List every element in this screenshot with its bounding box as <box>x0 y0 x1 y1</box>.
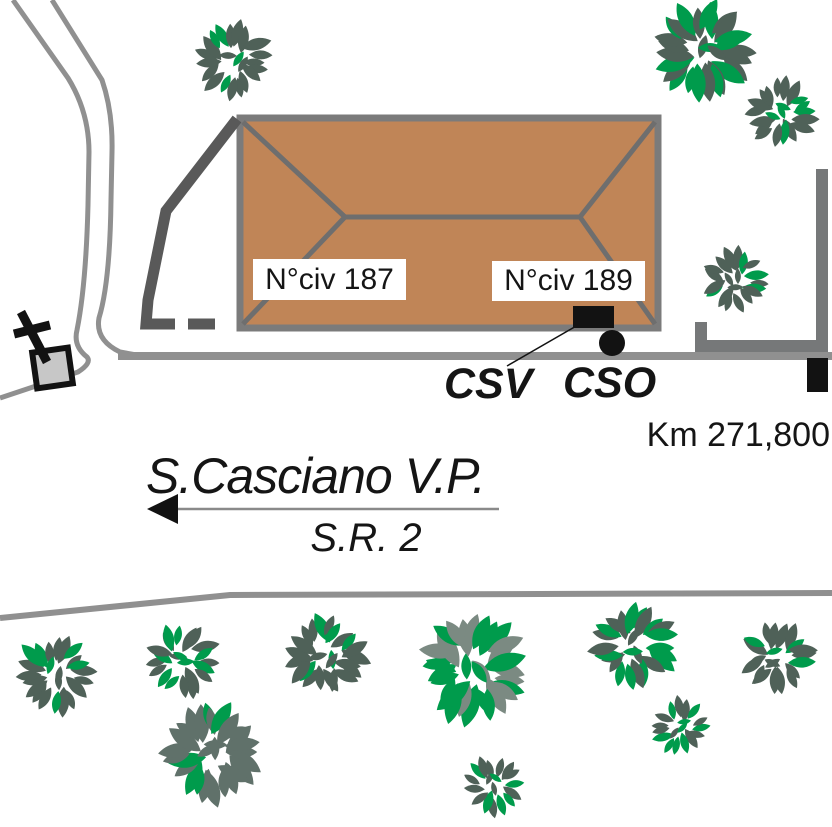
courtyard-wall-line <box>146 119 237 324</box>
road-name-label: S.R. 2 <box>298 518 434 558</box>
tree <box>651 694 711 755</box>
destination-label: S.Casciano V.P. <box>146 451 485 501</box>
csv-marker <box>573 306 614 328</box>
tree-leaf <box>464 784 485 793</box>
km-marker-label: Km 271,800 <box>600 418 830 452</box>
west-road-inner-edge <box>52 0 142 356</box>
site-map: N°civ 187 N°civ 189 CSV CSO Km 271,800 S… <box>0 0 832 827</box>
cross-horizontal-bar <box>14 325 50 334</box>
tree <box>743 75 819 148</box>
tree-leaf <box>461 653 472 679</box>
map-graphics <box>0 0 832 827</box>
tree-leaf <box>744 270 770 281</box>
tree <box>283 610 374 694</box>
tree <box>653 0 757 103</box>
tree <box>418 612 528 730</box>
km-post-marker <box>807 358 828 392</box>
tree-leaf <box>249 50 273 60</box>
tree <box>701 244 769 314</box>
chapel-symbol <box>14 312 73 388</box>
lower-road <box>0 593 832 618</box>
csv-label: CSV <box>444 363 532 406</box>
tree <box>462 755 524 819</box>
tree-leaf <box>677 718 692 725</box>
civic-number-187-text: N°civ 187 <box>253 259 406 300</box>
cso-marker <box>599 330 625 356</box>
tree <box>157 698 265 809</box>
tree <box>15 634 98 718</box>
west-road-outer-edge <box>0 0 89 398</box>
civic-number-187-label: N°civ 187 <box>253 259 406 300</box>
tree <box>193 18 272 103</box>
tree <box>586 600 680 691</box>
courtyard-wall <box>146 119 237 324</box>
tree <box>145 623 221 699</box>
tree-leaf <box>765 646 783 657</box>
tree <box>739 621 818 695</box>
cso-label: CSO <box>563 362 656 405</box>
civic-number-189-label: N°civ 189 <box>492 261 645 301</box>
tree-leaf <box>219 52 237 60</box>
civic-number-189-text: N°civ 189 <box>492 261 645 301</box>
